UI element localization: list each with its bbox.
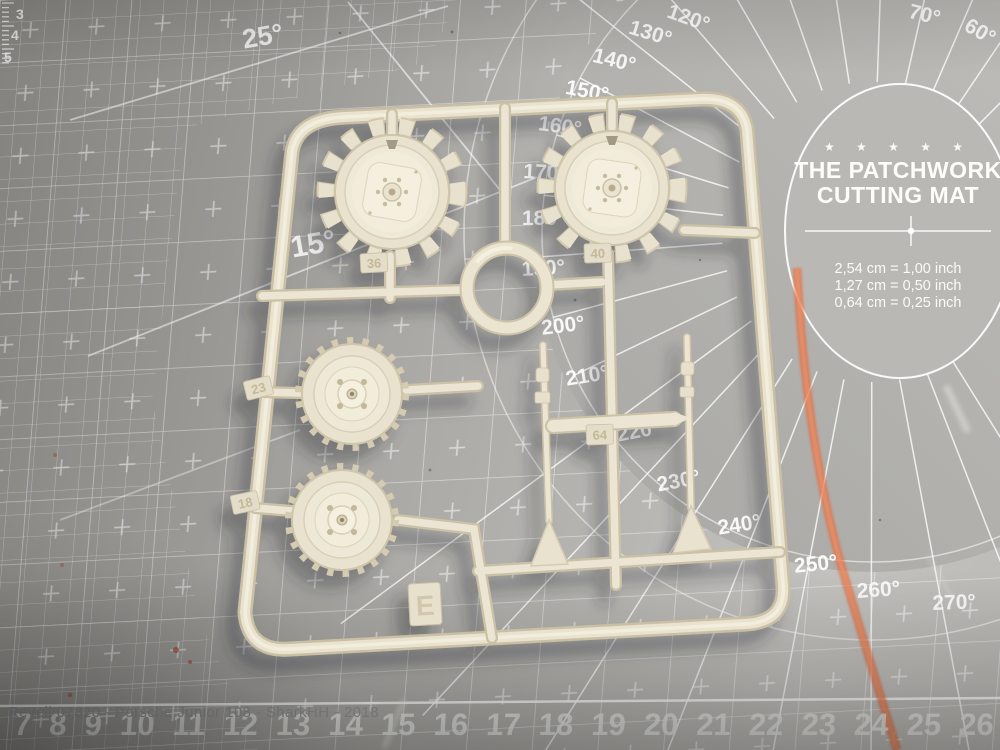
svg-text:18: 18 [237, 494, 254, 512]
svg-text:E: E [415, 590, 435, 622]
wheel-large-top-left [326, 126, 458, 258]
wheel-mid-left [300, 342, 404, 446]
wheel-large-top-right [546, 122, 678, 254]
svg-text:40: 40 [590, 246, 605, 261]
part-tag: 36 [360, 253, 388, 273]
photo-model-sprue-on-cutting-mat: ★ ★ ★ ★ ★ THE PATCHWORK CUTTING MAT 2,54… [0, 0, 1000, 750]
axle-rod-left [535, 345, 550, 521]
svg-text:36: 36 [366, 255, 381, 271]
ring-part [451, 232, 564, 345]
bar-part [553, 412, 690, 426]
sprue: 36 40 23 18 64 [0, 0, 1000, 750]
wheel-bottom-left [290, 468, 394, 572]
part-tag: 40 [584, 243, 612, 263]
triangle-part-right [673, 506, 711, 553]
svg-text:64: 64 [592, 427, 608, 443]
axle-rod-right [680, 337, 694, 508]
gate-letter-tag: E [408, 582, 442, 626]
triangle-part-left [531, 520, 568, 566]
part-tag: 64 [586, 424, 614, 445]
